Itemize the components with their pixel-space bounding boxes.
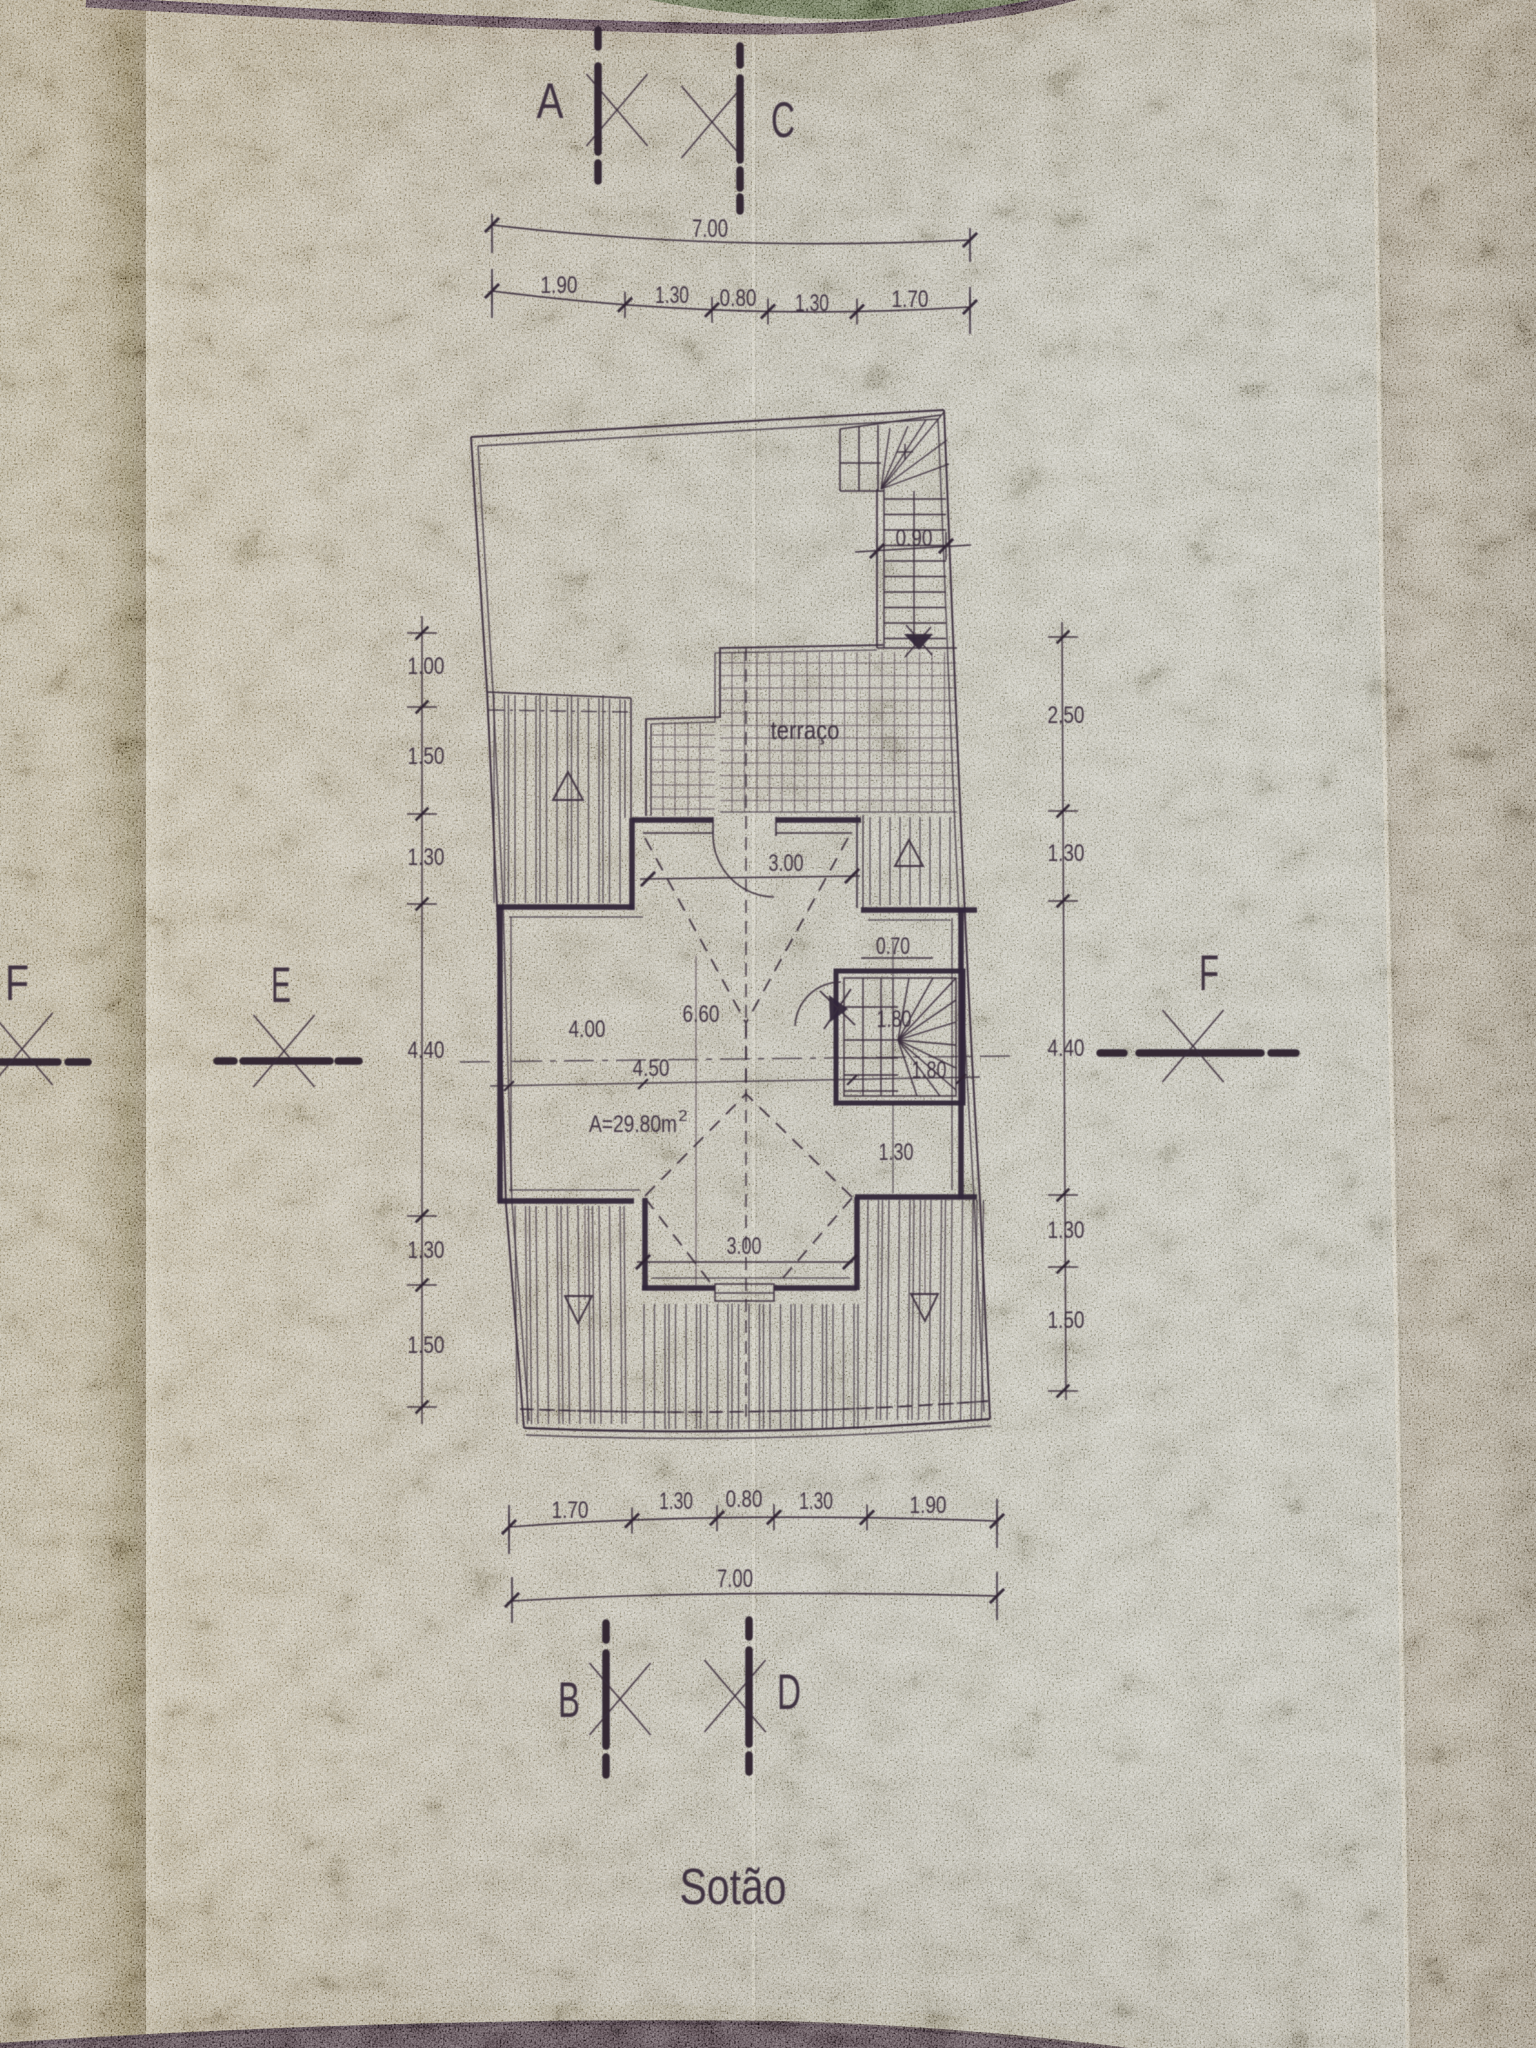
svg-text:A: A	[537, 73, 565, 129]
svg-text:F: F	[1199, 945, 1219, 1001]
svg-text:1.30: 1.30	[799, 1488, 833, 1515]
svg-text:1.70: 1.70	[552, 1497, 589, 1524]
svg-text:2: 2	[679, 1108, 688, 1125]
svg-text:1.30: 1.30	[1048, 840, 1085, 867]
svg-text:C: C	[771, 92, 795, 148]
svg-text:D: D	[777, 1664, 801, 1720]
svg-text:2.50: 2.50	[1048, 702, 1085, 729]
svg-text:0.80: 0.80	[726, 1486, 763, 1513]
svg-text:1.00: 1.00	[408, 653, 445, 680]
svg-text:1.30: 1.30	[655, 282, 689, 309]
svg-text:4.40: 4.40	[408, 1037, 445, 1064]
svg-text:1.50: 1.50	[408, 1332, 445, 1359]
svg-text:terraço: terraço	[771, 715, 840, 745]
svg-text:Sotão: Sotão	[680, 1858, 787, 1915]
svg-text:6.60: 6.60	[683, 1001, 720, 1028]
svg-text:4.40: 4.40	[1048, 1035, 1085, 1062]
svg-text:1.70: 1.70	[892, 286, 929, 313]
svg-text:1.30: 1.30	[659, 1488, 693, 1515]
svg-text:7.00: 7.00	[717, 1565, 753, 1593]
svg-text:1.80: 1.80	[912, 1057, 947, 1084]
svg-text:1.80: 1.80	[877, 1006, 912, 1033]
svg-text:1.30: 1.30	[408, 844, 445, 871]
svg-text:1.90: 1.90	[541, 272, 578, 299]
svg-text:7.00: 7.00	[692, 215, 728, 243]
svg-text:1.30: 1.30	[879, 1139, 914, 1166]
svg-text:0.80: 0.80	[720, 285, 757, 312]
svg-text:4.00: 4.00	[569, 1016, 606, 1043]
svg-text:A=29.80m: A=29.80m	[589, 1111, 677, 1138]
svg-text:1.30: 1.30	[795, 290, 829, 317]
svg-text:1.30: 1.30	[1048, 1217, 1085, 1244]
svg-text:4.50: 4.50	[633, 1055, 670, 1082]
svg-text:3.00: 3.00	[727, 1233, 762, 1260]
svg-text:B: B	[558, 1672, 580, 1728]
svg-text:1.50: 1.50	[1048, 1307, 1085, 1334]
svg-text:E: E	[271, 957, 291, 1013]
svg-text:1.50: 1.50	[408, 743, 445, 770]
svg-text:1.30: 1.30	[408, 1237, 445, 1264]
svg-text:0.90: 0.90	[896, 525, 933, 552]
svg-text:1.90: 1.90	[910, 1492, 947, 1519]
svg-text:3.00: 3.00	[769, 850, 804, 877]
svg-text:F: F	[5, 955, 29, 1011]
